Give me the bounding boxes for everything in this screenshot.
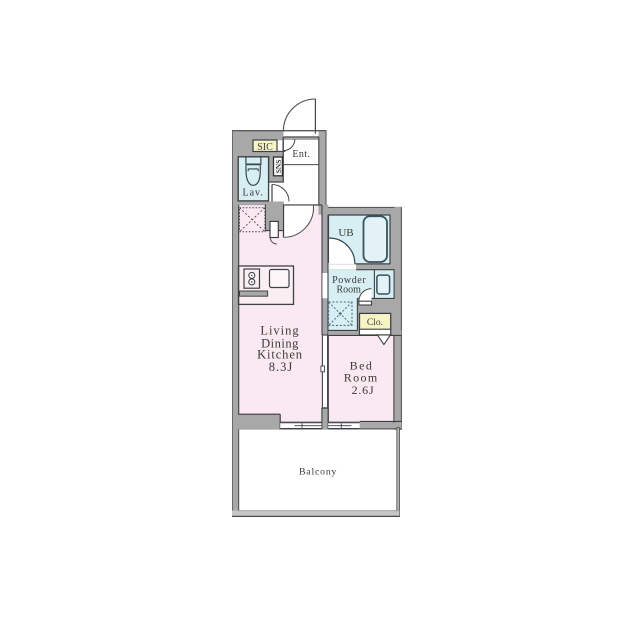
svg-text:SIC: SIC: [257, 142, 273, 153]
svg-text:Room: Room: [336, 285, 361, 296]
svg-text:Clo.: Clo.: [367, 318, 383, 328]
svg-text:Living: Living: [260, 323, 299, 337]
svg-text:2.6J: 2.6J: [352, 383, 375, 397]
svg-text:UB: UB: [338, 227, 353, 239]
svg-text:8.3J: 8.3J: [269, 360, 294, 374]
svg-text:Balcony: Balcony: [299, 467, 337, 478]
svg-text:Ent.: Ent.: [292, 149, 310, 160]
svg-text:Lav.: Lav.: [242, 188, 263, 199]
svg-text:SNS: SNS: [274, 160, 283, 174]
